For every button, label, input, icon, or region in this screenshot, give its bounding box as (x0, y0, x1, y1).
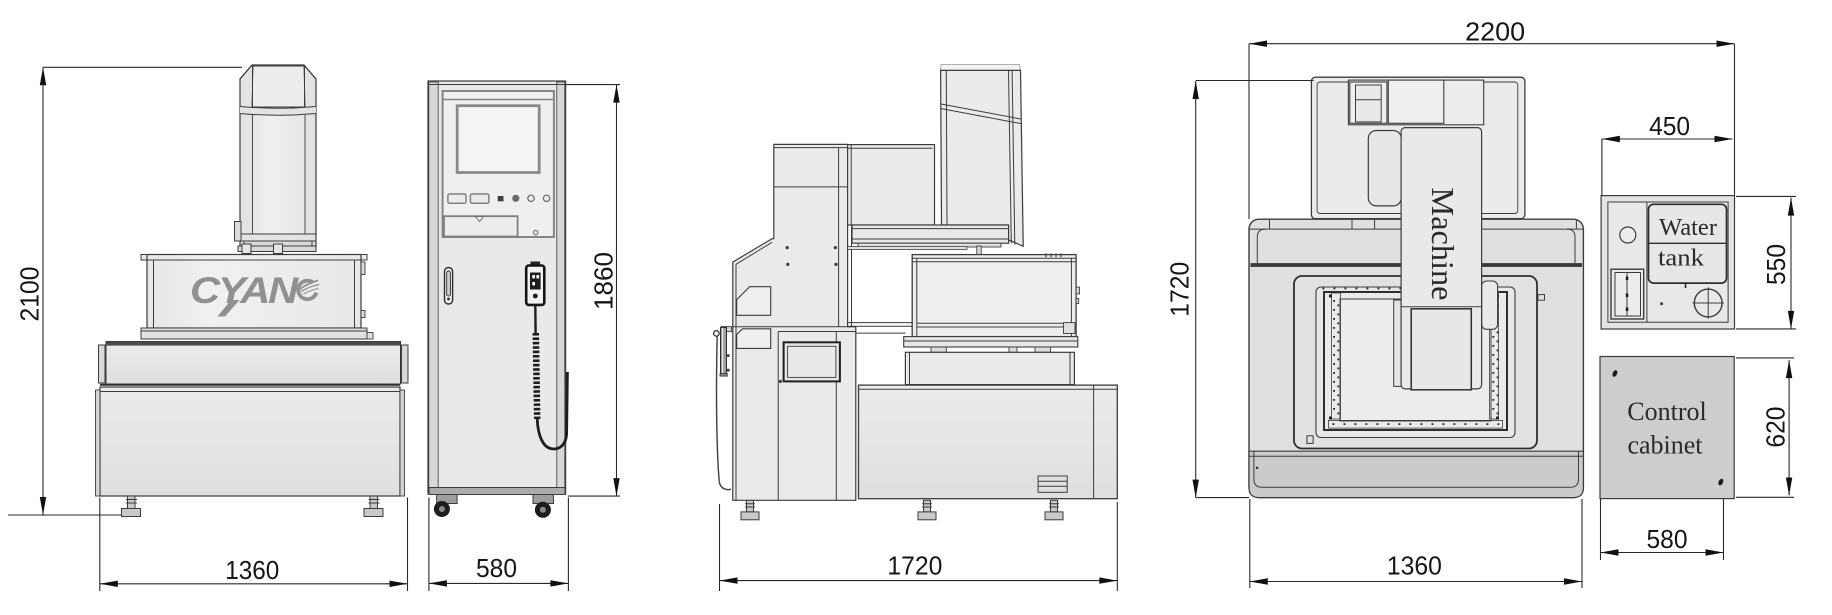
svg-text:450: 450 (1649, 111, 1690, 141)
svg-text:CYAN: CYAN (190, 270, 300, 311)
svg-text:580: 580 (476, 553, 517, 583)
svg-text:Water: Water (1659, 215, 1717, 241)
svg-text:550: 550 (1761, 244, 1791, 285)
svg-text:620: 620 (1761, 407, 1791, 448)
svg-text:cabinet: cabinet (1627, 431, 1703, 460)
svg-text:Control: Control (1627, 397, 1706, 426)
svg-text:1720: 1720 (1165, 262, 1195, 317)
svg-text:1360: 1360 (225, 555, 279, 585)
svg-text:1860: 1860 (589, 252, 619, 310)
svg-text:1360: 1360 (1387, 550, 1442, 580)
svg-text:2200: 2200 (1465, 17, 1525, 47)
svg-text:2100: 2100 (15, 267, 45, 322)
svg-text:1720: 1720 (887, 551, 942, 581)
svg-text:Machine: Machine (1425, 188, 1461, 301)
svg-text:580: 580 (1647, 524, 1688, 554)
svg-text:tank: tank (1658, 246, 1704, 272)
